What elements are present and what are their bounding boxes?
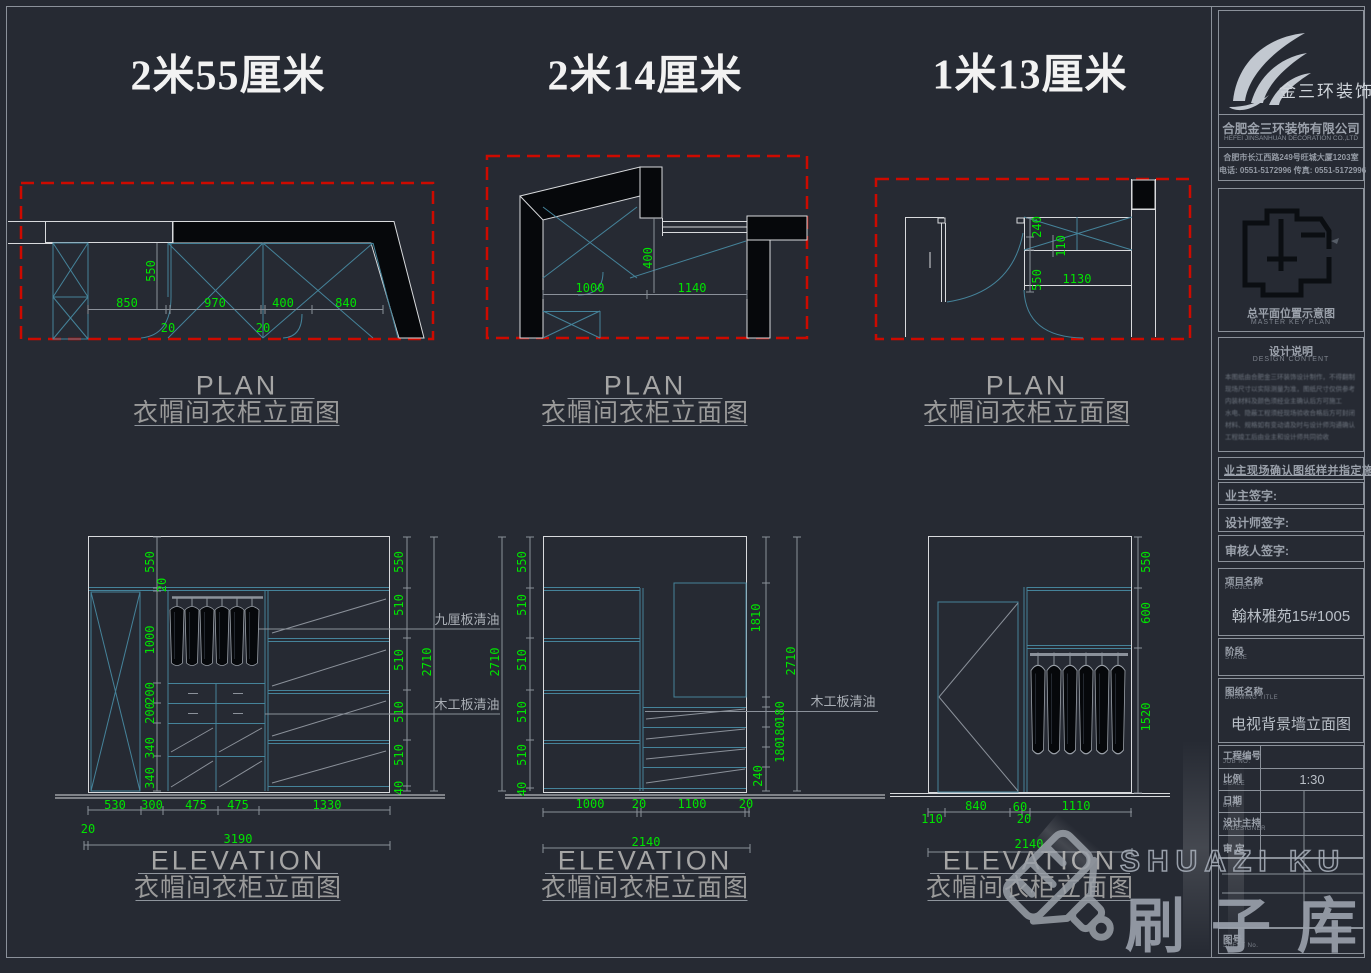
dim-label: 550	[516, 551, 528, 573]
dim-label: 40	[516, 782, 528, 796]
dim-label: 40	[393, 781, 405, 795]
plan2-underline-2	[543, 425, 748, 426]
dim-label: 1100	[678, 798, 707, 810]
material-note-9mm: 九厘板清油	[434, 609, 499, 628]
owner-signature-label: 业主签字:	[1225, 487, 1277, 504]
dim-label: 970	[204, 297, 226, 309]
dim-label: 20	[161, 322, 175, 334]
dim-label: 400	[642, 247, 654, 269]
material-note-wood: 木工板清油	[434, 694, 499, 713]
dim-label: 180	[774, 741, 786, 763]
plan1-underline-2	[135, 425, 340, 426]
dim-label: 200	[144, 682, 156, 704]
material-note-wood-2: 木工板清油	[810, 691, 875, 710]
dim-label: 600	[1140, 602, 1152, 624]
keyplan-label-en: MASTER KEY PLAN	[1219, 319, 1363, 326]
company-phone: 电话: 0551-5172996 传真: 0551-5172996	[1219, 165, 1363, 176]
dim-label: 1140	[678, 282, 707, 294]
design-content-label-en: DESIGN CONTENT	[1219, 356, 1363, 363]
project-name: 翰林雅苑15#1005	[1219, 605, 1363, 626]
auditor-signature-label: 审核人签字:	[1225, 542, 1289, 559]
tb-panel-keyplan: 总平面位置示意图 MASTER KEY PLAN	[1218, 188, 1364, 332]
dim-label: 400	[272, 297, 294, 309]
dim-label: 840	[965, 800, 987, 812]
watermark-text-zh: 刷子库	[1125, 878, 1371, 965]
dim-label: 510	[393, 649, 405, 671]
dim-label: 510	[516, 744, 528, 766]
project-label-en: PROJECT	[1225, 585, 1257, 591]
design-note: 现场尺寸以实际测量为准，图纸尺寸仅供参考	[1225, 383, 1359, 393]
dim-label: 20	[256, 322, 270, 334]
dim-label: 240	[752, 765, 764, 787]
dim-label: 2140	[632, 836, 661, 848]
elev1-title-zh: 衣帽间衣柜立面图	[134, 868, 342, 904]
hangers-elev1	[170, 598, 259, 666]
tb-panel-owner-sign: 业主签字:	[1218, 482, 1364, 505]
plan-view-1	[8, 183, 433, 339]
company-name-en: HEFEI JINSANHUAN DECORATION CO.,LTD	[1219, 135, 1363, 142]
dim-label: 510	[516, 594, 528, 616]
dim-label: 20	[1017, 813, 1031, 825]
dim-label: 1000	[576, 798, 605, 810]
tb-panel-drawing-title: 图纸名称 DRAWING TITLE 电视背景墙立面图	[1218, 678, 1364, 743]
dim-label: 3190	[224, 833, 253, 845]
drawing-title-value: 电视背景墙立面图	[1219, 713, 1363, 734]
dim-label: 2710	[489, 648, 501, 677]
tb-panel-project: 项目名称 PROJECT 翰林雅苑15#1005	[1218, 568, 1364, 636]
dim-label: 550	[145, 260, 157, 282]
cad-linework	[0, 0, 1371, 964]
dim-label: 200	[144, 702, 156, 724]
tb-divider	[1219, 114, 1363, 115]
dim-label: 510	[516, 701, 528, 723]
dim-label: 850	[116, 297, 138, 309]
dim-label: 510	[393, 594, 405, 616]
dim-label: 1000	[576, 282, 605, 294]
designer-signature-label: 设计师签字:	[1225, 514, 1289, 531]
tb-panel-confirm: 业主现场确认图纸样并指定施工	[1218, 457, 1364, 480]
plan-view-3	[876, 179, 1190, 339]
scale-value: 1:30	[1261, 772, 1363, 787]
dim-label: 20	[156, 578, 168, 592]
plan3-title-zh: 衣帽间衣柜立面图	[923, 393, 1131, 429]
design-note: 内装材料及颜色须经业主确认后方可施工	[1225, 395, 1359, 405]
design-note: 材料、规格如有变动请及时与设计师沟通确认	[1225, 419, 1359, 429]
dim-label: 1810	[750, 604, 762, 633]
tb-panel-auditor-sign: 审核人签字:	[1218, 535, 1364, 562]
dim-label: 475	[185, 799, 207, 811]
dim-label: 20	[739, 798, 753, 810]
dim-label: 510	[516, 649, 528, 671]
elevation-view-3	[890, 537, 1170, 858]
dim-label: 180	[774, 701, 786, 723]
watermark-text-en: SHUAZI KU	[1120, 845, 1346, 879]
dim-label: 475	[227, 799, 249, 811]
section-header-3: 1米13厘米	[932, 41, 1127, 102]
dim-label: 240	[1031, 216, 1043, 238]
section-header-2: 2米14厘米	[547, 42, 742, 103]
tb-panel-designer-sign: 设计师签字:	[1218, 508, 1364, 532]
dim-label: 180	[774, 721, 786, 743]
stage-label-en: STAGE	[1225, 655, 1247, 661]
dim-label: 2710	[421, 648, 433, 677]
hangers-elev3	[1031, 653, 1125, 754]
dim-label: 550	[1140, 551, 1152, 573]
dim-label: 530	[104, 799, 126, 811]
brand-name: 金三环装饰	[1279, 77, 1371, 102]
tb-panel-stage: 阶段 STAGE	[1218, 638, 1364, 676]
dim-label: 1520	[1140, 703, 1152, 732]
dim-label: 20	[81, 823, 95, 835]
dim-label: 1330	[313, 799, 342, 811]
elev1-underline-2	[136, 900, 341, 901]
company-address: 合肥市长江西路249号旺城大厦1203室	[1219, 152, 1363, 163]
design-note: 本图纸由合肥金三环装饰设计制作，不得翻制	[1225, 371, 1359, 381]
dim-label: 340	[144, 737, 156, 759]
master-key-plan-thumbnail	[1231, 195, 1351, 303]
dim-label: 550	[1031, 269, 1043, 291]
elev2-title-zh: 衣帽间衣柜立面图	[541, 868, 749, 904]
design-note: 工程竣工后由业主和设计师共同验收	[1225, 431, 1359, 441]
design-note: 水电、隐蔽工程须经现场验收合格后方可封闭	[1225, 407, 1359, 417]
sheet-frame	[7, 7, 1365, 958]
dim-label: 300	[141, 799, 163, 811]
section-header-1: 2米55厘米	[130, 42, 325, 103]
dim-label: 510	[393, 701, 405, 723]
dim-label: 1000	[144, 626, 156, 655]
dim-label: 550	[393, 551, 405, 573]
dim-label: 1130	[1063, 273, 1092, 285]
dim-label: 20	[632, 798, 646, 810]
tb-divider	[1219, 147, 1363, 148]
dim-label: 110	[921, 813, 943, 825]
dim-label: 510	[393, 744, 405, 766]
dim-label: 840	[335, 297, 357, 309]
dim-label: 2710	[785, 647, 797, 676]
drawing-title-label-en: DRAWING TITLE	[1225, 695, 1278, 701]
dim-label: 110	[1055, 235, 1067, 257]
dim-label: 1110	[1062, 800, 1091, 812]
dim-label: 550	[144, 551, 156, 573]
tb-panel-design-content: 设计说明 DESIGN CONTENT 本图纸由合肥金三环装饰设计制作，不得翻制…	[1218, 337, 1364, 452]
dim-label: 340	[144, 767, 156, 789]
plan2-title-zh: 衣帽间衣柜立面图	[541, 393, 749, 429]
plan1-title-zh: 衣帽间衣柜立面图	[133, 393, 341, 429]
elev2-underline-2	[543, 900, 748, 901]
tb-panel-company: 金三环装饰 合肥金三环装饰有限公司 HEFEI JINSANHUAN DECOR…	[1218, 10, 1364, 181]
owner-confirm-note: 业主现场确认图纸样并指定施工	[1224, 462, 1371, 478]
plan3-underline-2	[925, 425, 1130, 426]
